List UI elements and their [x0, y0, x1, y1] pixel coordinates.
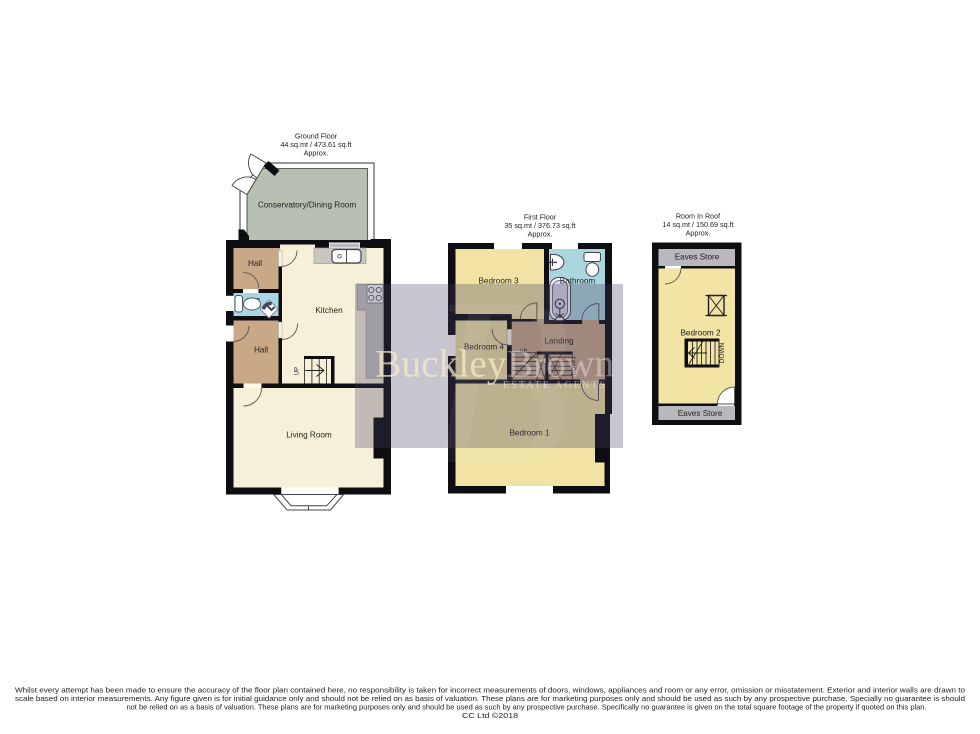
svg-text:Approx.: Approx.: [686, 229, 711, 238]
svg-text:Living Room: Living Room: [286, 431, 332, 440]
svg-text:Hall: Hall: [254, 346, 268, 355]
svg-text:Conservatory/Dining Room: Conservatory/Dining Room: [258, 201, 356, 210]
svg-text:not be relied on as a basis of: not be relied on as a basis of valuation…: [127, 703, 927, 712]
svg-text:Bedroom 2: Bedroom 2: [680, 329, 720, 338]
svg-text:CC Ltd ©2018: CC Ltd ©2018: [462, 711, 518, 720]
svg-text:Eaves Store: Eaves Store: [678, 409, 723, 418]
svg-text:Approx.: Approx.: [528, 230, 553, 239]
svg-text:BuckleyBrown: BuckleyBrown: [375, 342, 614, 386]
svg-text:Kitchen: Kitchen: [315, 306, 343, 315]
svg-text:Hall: Hall: [248, 259, 262, 268]
svg-text:UP: UP: [295, 367, 301, 375]
svg-text:Eaves Store: Eaves Store: [675, 253, 720, 262]
svg-text:DOWN: DOWN: [719, 342, 726, 363]
svg-text:Approx.: Approx.: [304, 149, 329, 158]
